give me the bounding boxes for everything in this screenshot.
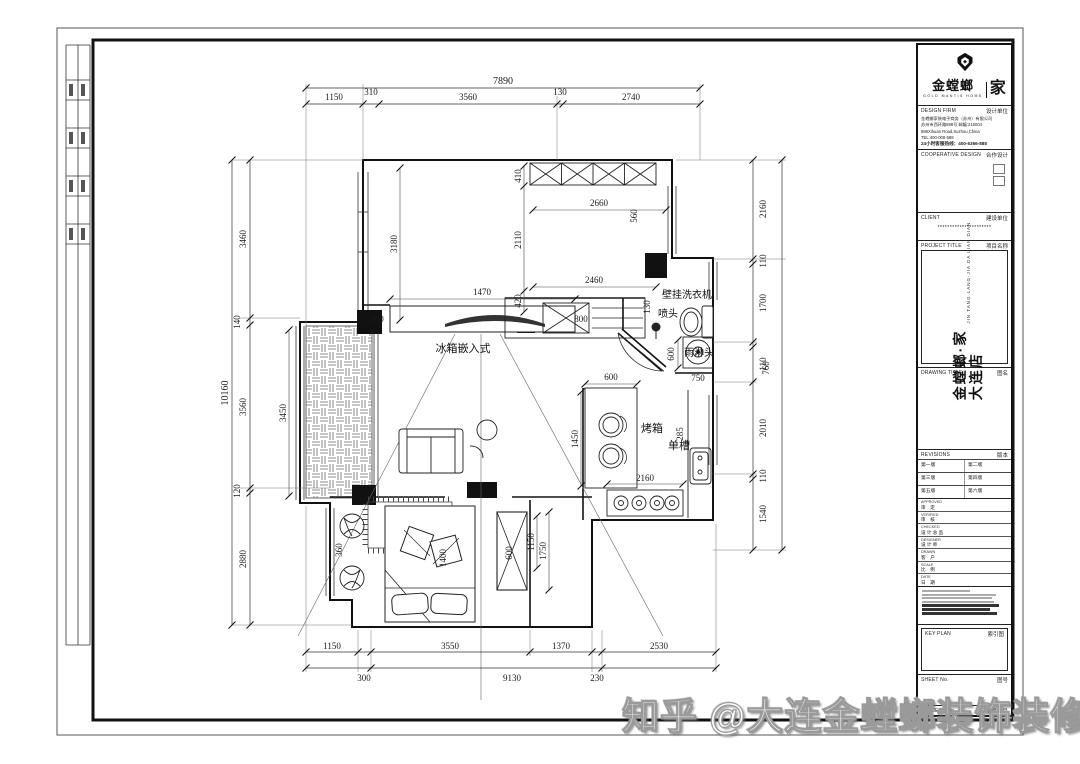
- title-block: 金螳螂 GOLD MANTIS HOME 家 DESIGN FIRM 设计单位 …: [916, 43, 1013, 717]
- dim-hall-width: 1150: [526, 533, 536, 551]
- dim-wardrobe-height: 1750: [538, 542, 548, 561]
- signoff-label-cn: 审 核: [921, 517, 1008, 522]
- dim-chain-420: 420: [513, 294, 523, 308]
- drawing-label-cn: 图名: [997, 369, 1008, 377]
- dim-balcony-height: 3450: [278, 404, 288, 423]
- client-section: CLIENT 建设单位 **********************: [918, 213, 1011, 242]
- signoff-scale: SCALE 比 例: [918, 562, 1011, 575]
- revision-cell: 第四版: [964, 473, 1011, 485]
- revisions-label-en: REVISIONS: [921, 452, 950, 458]
- dim-left-2880: 2880: [238, 550, 248, 569]
- gold-mantis-logo-icon: [955, 52, 975, 72]
- stamp-box: [993, 176, 1005, 186]
- firm-hotline: 24小时客服热线：400-6366-888: [921, 141, 1008, 148]
- dim-left-140: 140: [232, 315, 242, 329]
- dim-bath-side: 130: [642, 300, 652, 314]
- client-label-en: CLIENT: [921, 215, 940, 221]
- kitchen-island: [585, 388, 637, 488]
- toilet: [680, 306, 713, 338]
- dim-wardrobe-depth: 600: [504, 546, 514, 560]
- keyplan-label-cn: 索引图: [987, 630, 1004, 638]
- dim-bot-1150: 1150: [323, 641, 341, 651]
- sheet-frame: [57, 28, 1023, 735]
- design-firm-section: DESIGN FIRM 设计单位 金螳螂家装电子商务（苏州）有限公司 苏州市西环…: [918, 106, 1011, 150]
- bed: [385, 506, 475, 622]
- dim-top-130: 130: [553, 87, 567, 97]
- revision-row: 第三版 第四版: [918, 472, 1011, 485]
- signoff-designer: DESIGNER 设 计 师: [918, 537, 1011, 550]
- design-firm-label-cn: 设计单位: [986, 107, 1008, 115]
- logo-text-cn: 金螳螂: [932, 75, 974, 94]
- dim-island-height: 1450: [570, 430, 580, 449]
- logo-divider: [986, 82, 987, 98]
- signoff-checked: CHECKED 设 计 总 监: [918, 524, 1011, 537]
- signoff-label-cn: 比 例: [921, 567, 1008, 572]
- dim-top: [303, 85, 704, 108]
- bathroom-door: [618, 333, 664, 371]
- signoff-label-cn: 设 计 总 监: [921, 530, 1008, 535]
- dim-washer-side: 600: [666, 347, 676, 361]
- sheet-no-label-en: SHEET No.: [921, 677, 949, 683]
- dim-top-3560: 3560: [459, 92, 478, 102]
- dim-left-3560: 3560: [238, 398, 248, 417]
- dim-chain-2110: 2110: [513, 231, 523, 249]
- sofa: [399, 429, 463, 473]
- signoff-label-cn: 日 期: [921, 580, 1008, 585]
- sheet-no-label-cn: 图号: [997, 676, 1008, 684]
- kitchen-sink: [688, 390, 711, 518]
- revisions-section: REVISIONS 版本 第一版 第二版 第三版 第四版 第五版 第六版: [918, 450, 1011, 500]
- drawing-label-en: DRAWING TITLE: [921, 370, 963, 376]
- notes-section: [918, 587, 1011, 625]
- label-rain-shower: 雨淋头: [684, 346, 714, 359]
- drawing-sheet: 冰箱嵌入式 壁挂洗衣机 喷头 雨淋头 烤箱 单槽 7890 1150 310 3…: [0, 0, 1080, 764]
- dim-top-total: 7890: [493, 76, 513, 87]
- dim-tv-width: 1470: [473, 287, 492, 297]
- client-value: **********************: [918, 225, 1011, 231]
- signoff-label-cn: 审 定: [921, 505, 1008, 510]
- project-label-cn: 项目名称: [986, 242, 1008, 250]
- dim-bottom: [303, 649, 720, 672]
- keyplan-section: KEY PLAN 索引图: [918, 625, 1011, 675]
- signoff-label-cn: 设 计 师: [921, 542, 1008, 547]
- dim-stove-width: 2160: [636, 473, 655, 483]
- dim-bot-9130: 9130: [503, 673, 522, 683]
- dim-counter-width: 2460: [585, 275, 604, 285]
- signoff-drawn: DRAWN 客 户: [918, 549, 1011, 562]
- dim-bot-2530: 2530: [650, 641, 669, 651]
- dim-island-width: 600: [604, 372, 618, 382]
- dim-bot-1370: 1370: [552, 641, 571, 651]
- keyplan-label-en: KEY PLAN: [925, 631, 951, 637]
- wardrobe-top: [530, 163, 656, 185]
- revision-cell: 第一版: [918, 460, 964, 472]
- coffee-table: [470, 420, 497, 458]
- dim-right-760: 760: [761, 361, 771, 375]
- dim-tv-left: 900: [370, 314, 384, 324]
- dim-sink-side: 285: [675, 427, 685, 441]
- dim-right-1700: 1700: [758, 294, 768, 313]
- dim-washer-width: 750: [691, 373, 705, 383]
- shower-head-symbol: [652, 323, 660, 339]
- revision-row: 第一版 第二版: [918, 459, 1011, 472]
- client-label-cn: 建设单位: [986, 214, 1008, 222]
- label-oven: 烤箱: [641, 421, 663, 435]
- project-name-box: 金螳螂·家 大连店 JIN TANG LANG·JIA DA LIAN DIAN: [921, 250, 1008, 364]
- label-washer: 壁挂洗衣机: [662, 288, 712, 301]
- dim-right-2010: 2010: [758, 419, 768, 438]
- revision-cell: 第五版: [918, 486, 964, 498]
- signoff-date: DATE 日 期: [918, 574, 1011, 586]
- dim-top-room-width: 2660: [590, 198, 609, 208]
- signoff-approved: APPROVED 审 定: [918, 499, 1011, 512]
- dim-room-height: 3180: [389, 235, 399, 254]
- dim-right-110c: 110: [758, 469, 768, 483]
- label-fridge: 冰箱嵌入式: [436, 341, 491, 355]
- coop-label-en: COOPERATIVE DESIGN: [921, 152, 981, 158]
- logo-text-home: 家: [990, 74, 1006, 98]
- dim-plant-side: 360: [334, 543, 344, 557]
- stove: [607, 490, 683, 516]
- revision-row: 第五版 第六版: [918, 485, 1011, 498]
- dim-bed-width: 1400: [438, 549, 448, 568]
- dim-bot-300: 300: [357, 673, 371, 683]
- signoff-verified: VERIFIED 审 核: [918, 512, 1011, 525]
- dim-right-110a: 110: [758, 254, 768, 268]
- design-firm-label-en: DESIGN FIRM: [921, 108, 956, 114]
- cooperative-design-section: COOPERATIVE DESIGN 合作设计: [918, 150, 1011, 213]
- balcony-floor-hatch: [306, 326, 372, 498]
- dim-tv-right: 800: [574, 314, 588, 324]
- stamp-box: [993, 164, 1005, 174]
- project-title-section: PROJECT TITLE 项目名称 金螳螂·家 大连店 JIN TANG LA…: [918, 241, 1011, 368]
- logo-subtext: GOLD MANTIS HOME: [923, 94, 983, 98]
- dim-top-room-side: 560: [629, 209, 639, 223]
- zhihu-watermark: 知乎 @大连金螳螂装饰装修: [622, 686, 1080, 740]
- dim-chain-410: 410: [513, 169, 523, 183]
- revision-cell: 第三版: [918, 473, 964, 485]
- project-label-en: PROJECT TITLE: [921, 243, 962, 249]
- dim-right-1540: 1540: [758, 505, 768, 524]
- drawing-title-section: DRAWING TITLE 图名: [918, 368, 1011, 450]
- revisions-label-cn: 版本: [997, 451, 1008, 459]
- project-name-en: JIN TANG LANG·JIA DA LIAN DIAN: [966, 222, 971, 324]
- signature-strip: [66, 45, 90, 645]
- dim-left-3460: 3460: [238, 230, 248, 249]
- dim-top-310: 310: [364, 87, 378, 97]
- dim-top-1150: 1150: [325, 92, 343, 102]
- dim-bot-230: 230: [590, 673, 604, 683]
- signoff-section: APPROVED 审 定 VERIFIED 审 核 CHECKED 设 计 总 …: [918, 499, 1011, 587]
- dim-right-2160: 2160: [758, 200, 768, 219]
- revision-cell: 第二版: [964, 460, 1011, 472]
- brand-logo: 金螳螂 GOLD MANTIS HOME 家: [918, 45, 1011, 106]
- label-sprayer: 喷头: [658, 308, 678, 320]
- revision-cell: 第六版: [964, 486, 1011, 498]
- dim-bot-3550: 3550: [441, 641, 460, 651]
- signoff-label-cn: 客 户: [921, 555, 1008, 560]
- dim-left-total: 10160: [220, 381, 231, 406]
- dim-top-2740: 2740: [622, 92, 641, 102]
- coop-label-cn: 合作设计: [986, 151, 1008, 159]
- dim-left-120: 120: [232, 484, 242, 498]
